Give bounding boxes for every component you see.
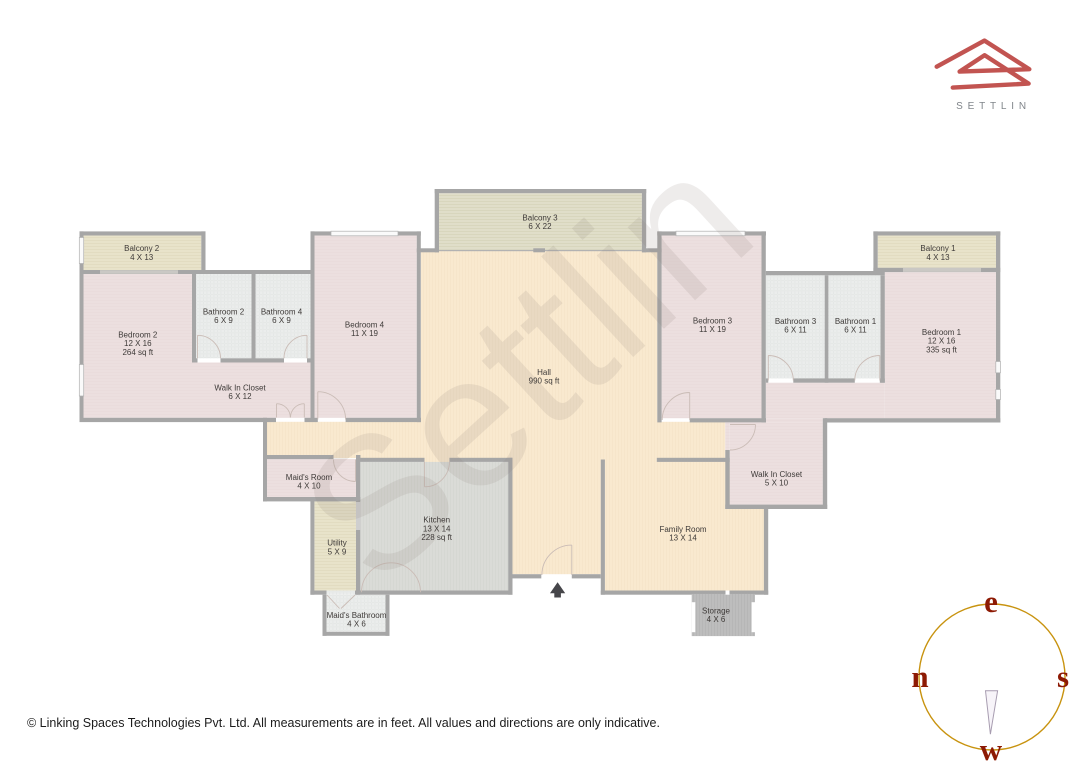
svg-text:13 X 14: 13 X 14 (669, 534, 697, 543)
svg-text:4 X 6: 4 X 6 (707, 615, 726, 624)
svg-text:11 X 19: 11 X 19 (699, 325, 727, 334)
svg-text:5 X 9: 5 X 9 (328, 547, 347, 556)
svg-text:4 X 13: 4 X 13 (130, 253, 154, 262)
svg-text:Bedroom 1: Bedroom 1 (922, 328, 962, 337)
svg-text:w: w (980, 732, 1003, 764)
svg-text:990 sq ft: 990 sq ft (529, 376, 560, 385)
svg-text:4 X 10: 4 X 10 (297, 482, 321, 491)
svg-text:228 sq ft: 228 sq ft (421, 533, 452, 542)
svg-text:e: e (984, 584, 998, 619)
svg-text:© Linking Spaces Technologies: © Linking Spaces Technologies Pvt. Ltd. … (27, 716, 660, 730)
svg-text:4 X 6: 4 X 6 (347, 620, 366, 629)
svg-text:11 X 19: 11 X 19 (351, 329, 379, 338)
svg-text:335 sq ft: 335 sq ft (926, 345, 957, 354)
svg-text:6 X 12: 6 X 12 (228, 392, 252, 401)
svg-text:264 sq ft: 264 sq ft (122, 348, 153, 357)
svg-text:6 X 9: 6 X 9 (272, 316, 291, 325)
svg-text:6 X 11: 6 X 11 (784, 326, 807, 335)
svg-text:13 X 14: 13 X 14 (423, 524, 451, 533)
svg-text:SETTLIN: SETTLIN (956, 101, 1031, 112)
svg-text:s: s (1057, 659, 1069, 694)
svg-text:6 X 11: 6 X 11 (844, 326, 867, 335)
svg-text:6 X 22: 6 X 22 (528, 222, 552, 231)
svg-text:Kitchen: Kitchen (423, 516, 450, 525)
svg-text:n: n (911, 659, 928, 694)
svg-text:6 X 9: 6 X 9 (214, 316, 233, 325)
svg-text:4 X 13: 4 X 13 (926, 253, 950, 262)
svg-text:12 X 16: 12 X 16 (928, 337, 956, 346)
svg-text:5 X 10: 5 X 10 (765, 479, 789, 488)
